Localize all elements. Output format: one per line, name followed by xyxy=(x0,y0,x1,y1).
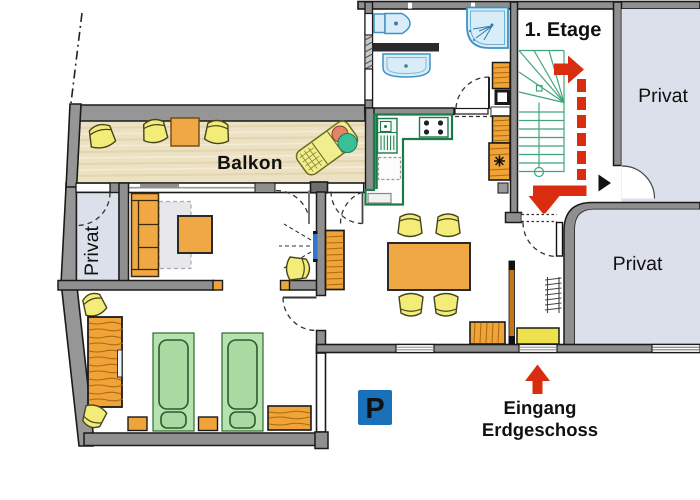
svg-text:Privat: Privat xyxy=(638,85,688,107)
svg-text:Erdgeschoss: Erdgeschoss xyxy=(482,419,598,440)
svg-text:Privat: Privat xyxy=(613,253,663,275)
svg-text:Privat: Privat xyxy=(81,226,103,276)
svg-text:P: P xyxy=(365,393,384,425)
svg-text:Balkon: Balkon xyxy=(217,153,283,174)
svg-text:1. Etage: 1. Etage xyxy=(525,19,602,41)
svg-text:Eingang: Eingang xyxy=(504,397,577,418)
